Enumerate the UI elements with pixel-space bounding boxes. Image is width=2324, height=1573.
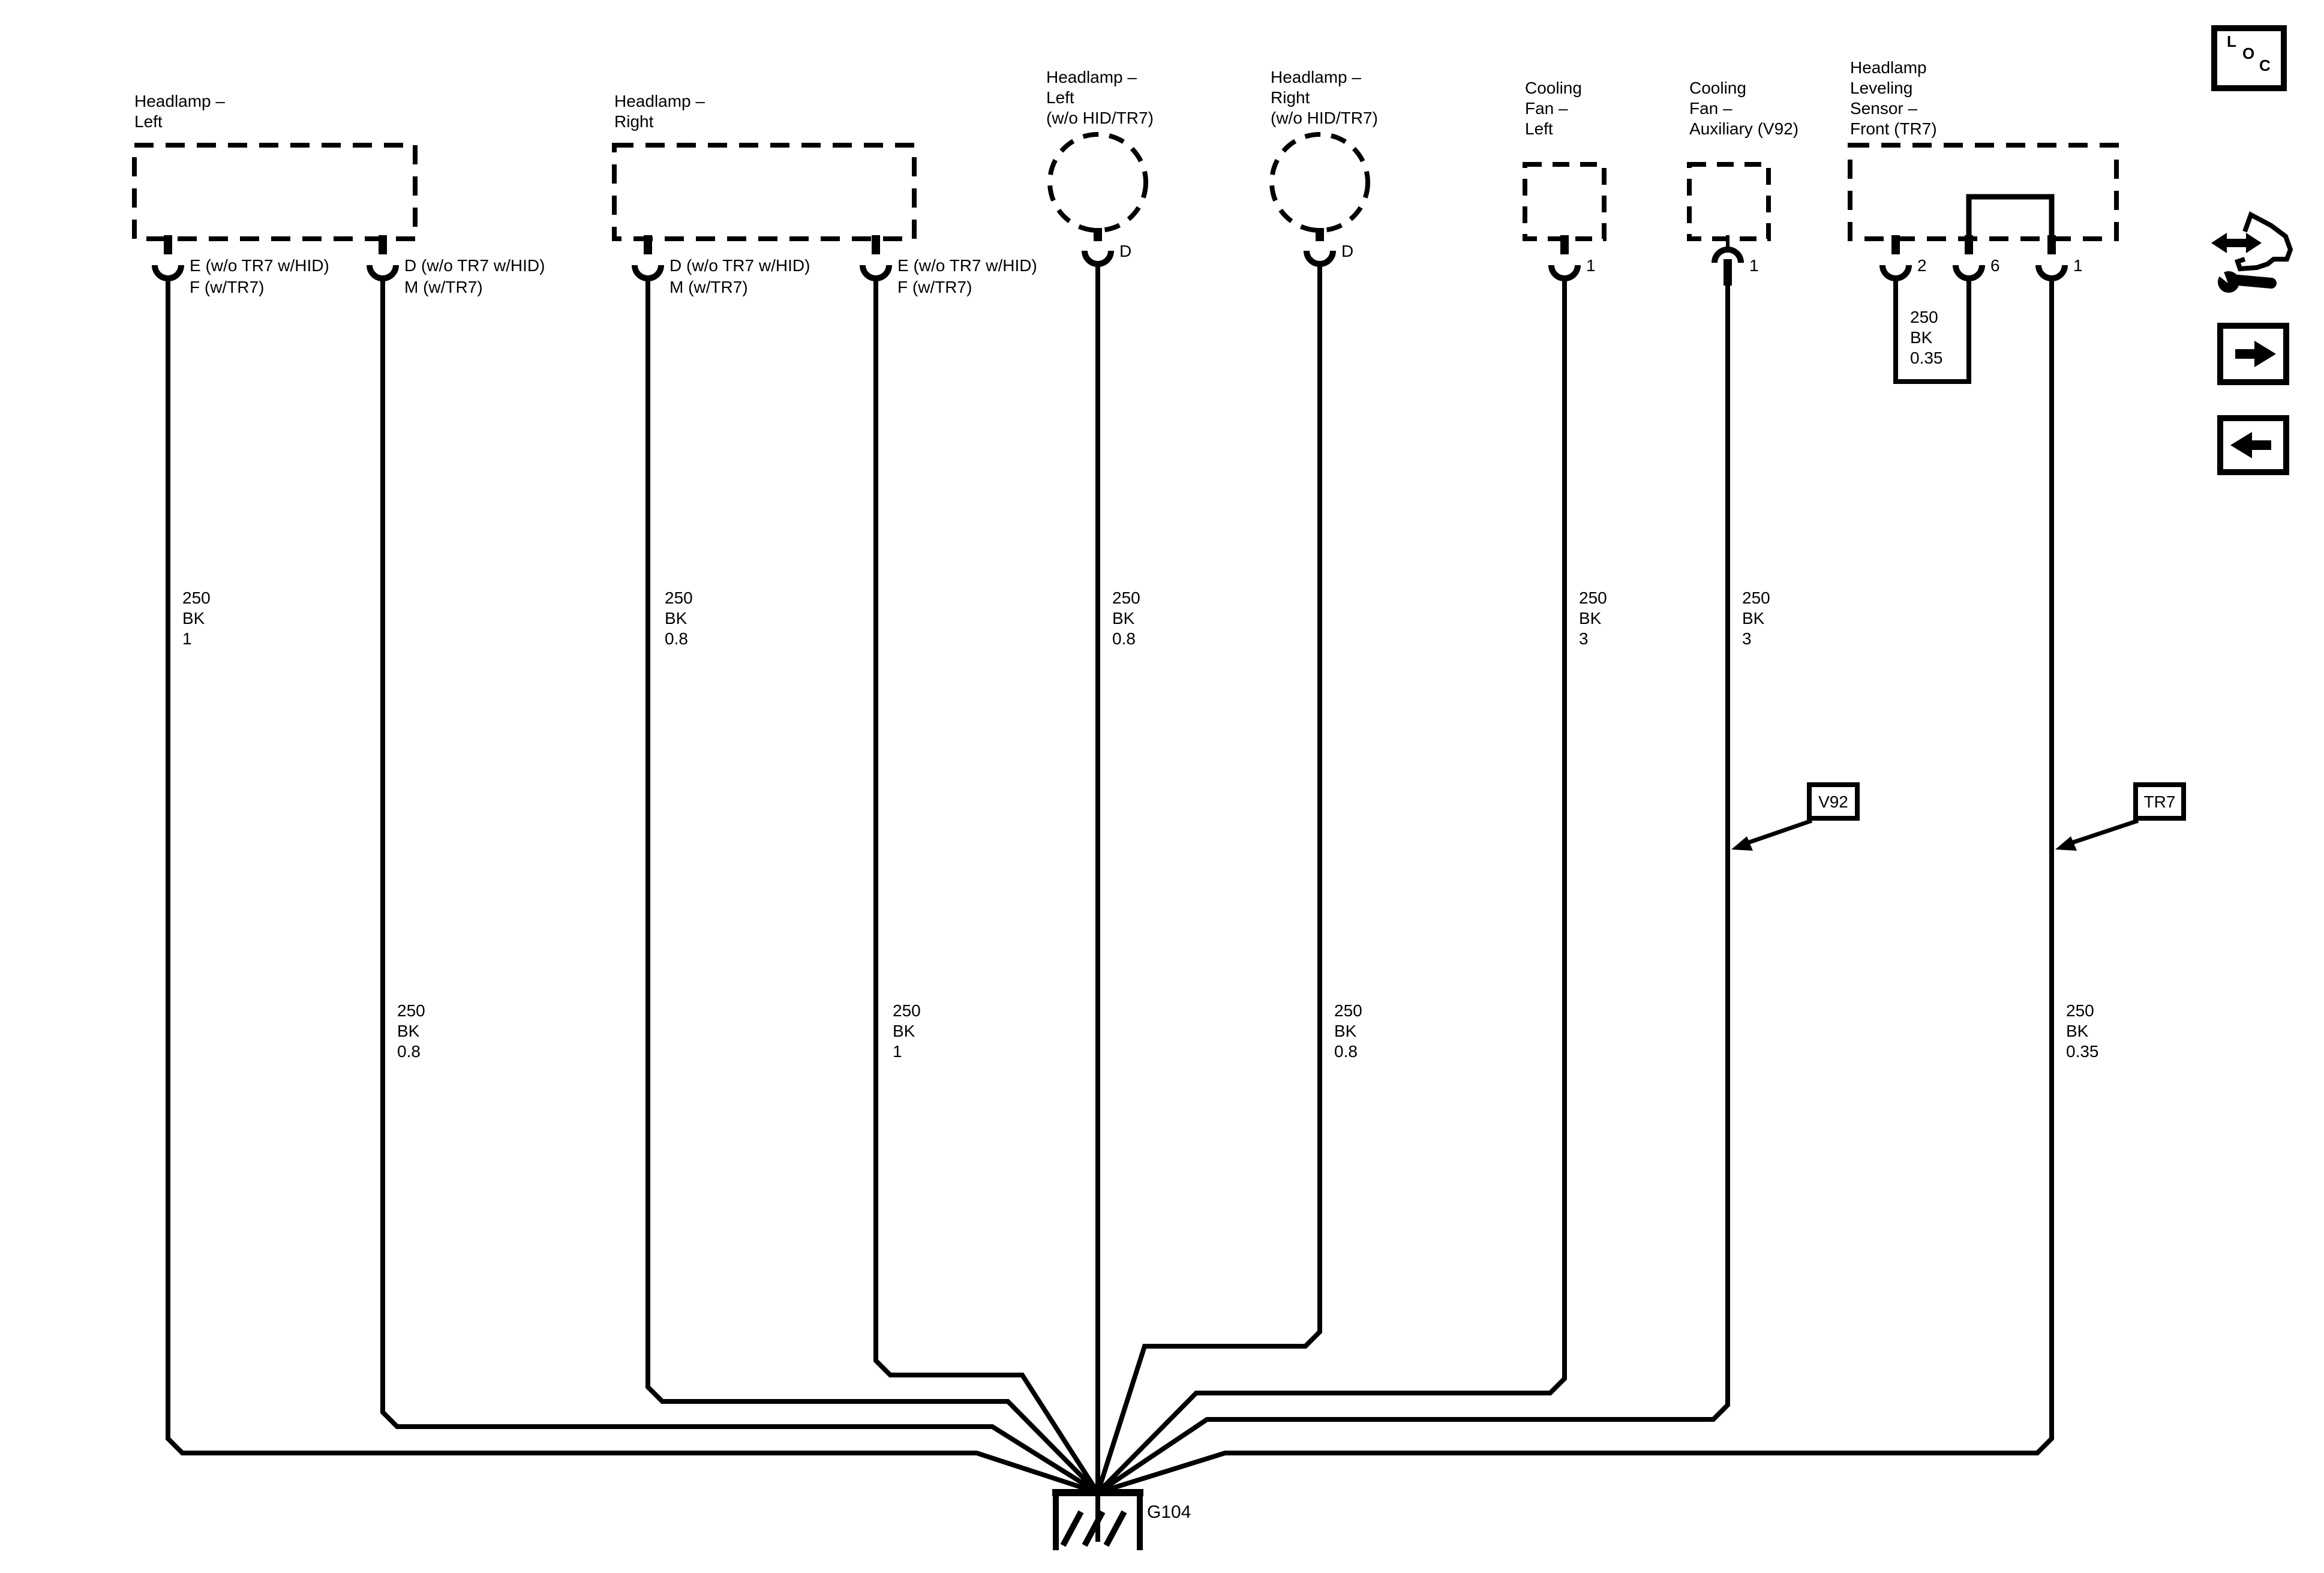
next-page-button[interactable] — [2217, 323, 2289, 385]
terminal-leveling-sensor-1 — [2038, 265, 2065, 278]
ground-wires — [168, 264, 2052, 1542]
wire-headlamp-left-e — [168, 278, 1098, 1493]
adjust-wrench-icon-art — [2208, 211, 2296, 298]
label-leveling-sensor: Headlamp Leveling Sensor – Front (TR7) — [1850, 58, 1937, 139]
wire-label-circle-left: 250 BK 0.8 — [1112, 588, 1140, 649]
wire-label-circle-right: 250 BK 0.8 — [1334, 1001, 1362, 1062]
double-arrow-right-head — [2246, 233, 2262, 253]
pin-label-hls-6: 6 — [1990, 254, 2000, 276]
label-cooling-fan-aux: Cooling Fan – Auxiliary (V92) — [1689, 78, 1798, 139]
pin-label-cf-left-1: 1 — [1586, 254, 1596, 276]
terminal-headlamp-left-d — [370, 265, 396, 278]
wire-headlamp-right-circle-d — [1098, 264, 1320, 1493]
wire-label-cf-aux: 250 BK 3 — [1742, 588, 1770, 649]
label-headlamp-left-circle: Headlamp – Left (w/o HID/TR7) — [1046, 67, 1154, 128]
wire-label-hl-right-d: 250 BK 0.8 — [665, 588, 693, 649]
terminal-headlamp-right-circle-d — [1307, 251, 1333, 264]
label-headlamp-right-circle: Headlamp – Right (w/o HID/TR7) — [1271, 67, 1378, 128]
double-arrow-left-head — [2211, 233, 2227, 253]
wiring-diagram-page: Headlamp – Left Headlamp – Right Headlam… — [0, 0, 2324, 1573]
pin-label-cf-aux-1: 1 — [1749, 254, 1759, 276]
terminal-headlamp-right-d — [635, 265, 661, 278]
terminal-cooling-fan-left-1 — [1551, 265, 1578, 278]
label-cooling-fan-left: Cooling Fan – Left — [1525, 78, 1582, 139]
wire-headlamp-right-d — [648, 278, 1098, 1493]
previous-page-button[interactable] — [2217, 415, 2289, 475]
right-arrow-icon — [2223, 329, 2283, 379]
headlamp-left-circle-outline — [1050, 134, 1146, 230]
wire-cooling-fan-aux — [1098, 286, 1728, 1493]
diagram-stage: Headlamp – Left Headlamp – Right Headlam… — [0, 0, 2324, 1573]
loc-letter-c: C — [2259, 56, 2271, 74]
wire-cooling-fan-left — [1098, 278, 1565, 1493]
pin-label-hl-left-d: D (w/o TR7 w/HID) M (w/TR7) — [404, 254, 545, 298]
pin-label-hls-2: 2 — [1917, 254, 1927, 276]
v92-arrow-line — [1746, 821, 1812, 843]
loc-letter-o: O — [2242, 44, 2254, 62]
terminal-headlamp-right-e — [863, 265, 889, 278]
callout-v92[interactable]: V92 — [1807, 782, 1860, 821]
terminal-leveling-sensor-6 — [1956, 265, 1982, 278]
leveling-sensor-internal-bridge — [1969, 197, 2052, 239]
callout-arrows — [1731, 821, 2138, 851]
terminal-headlamp-left-e — [155, 265, 181, 278]
label-headlamp-right: Headlamp – Right — [614, 91, 705, 132]
label-headlamp-left: Headlamp – Left — [134, 91, 225, 132]
loc-button[interactable]: L O C — [2211, 25, 2287, 91]
headlamp-right-circle-outline — [1272, 134, 1368, 230]
callout-tr7[interactable]: TR7 — [2133, 782, 2186, 821]
left-arrow-icon — [2223, 421, 2283, 469]
schematic-canvas — [0, 0, 2324, 1573]
wire-leveling-sensor-1 — [1098, 278, 2052, 1493]
pin-label-hl-right-e: E (w/o TR7 w/HID) F (w/TR7) — [897, 254, 1037, 298]
pin-label-circle-left-d: D — [1119, 240, 1131, 262]
wrench-handle — [2232, 280, 2271, 283]
headlamp-right-box — [614, 145, 914, 239]
tr7-arrow-line — [2070, 821, 2138, 843]
headlamp-left-box — [134, 145, 415, 239]
adjust-wrench-icon[interactable] — [2208, 211, 2296, 298]
pin-label-hls-1: 1 — [2073, 254, 2083, 276]
wire-label-hls-jumper: 250 BK 0.35 — [1910, 307, 1943, 368]
ground-label-g104: G104 — [1147, 1502, 1191, 1523]
pin-label-hl-right-d: D (w/o TR7 w/HID) M (w/TR7) — [669, 254, 810, 298]
leveling-sensor-box — [1850, 145, 2116, 239]
wire-headlamp-left-d — [383, 278, 1098, 1493]
loc-letter-l: L — [2227, 32, 2236, 50]
wire-label-hl-right-e: 250 BK 1 — [893, 1001, 921, 1062]
tr7-arrowhead — [2055, 836, 2077, 851]
wire-label-cf-left: 250 BK 3 — [1579, 588, 1607, 649]
terminal-headlamp-left-circle-d — [1085, 251, 1111, 264]
cooling-fan-left-box — [1525, 164, 1604, 239]
wire-headlamp-right-e — [876, 278, 1098, 1493]
terminal-leveling-sensor-2 — [1882, 265, 1909, 278]
pin-label-circle-right-d: D — [1341, 240, 1353, 262]
pin-label-hl-left-e: E (w/o TR7 w/HID) F (w/TR7) — [190, 254, 329, 298]
v92-arrowhead — [1731, 836, 1753, 851]
wire-label-hls-1: 250 BK 0.35 — [2066, 1001, 2099, 1062]
wire-label-hl-left-d: 250 BK 0.8 — [397, 1001, 425, 1062]
cooling-fan-aux-box — [1689, 164, 1768, 239]
wire-label-hl-left-e: 250 BK 1 — [182, 588, 211, 649]
